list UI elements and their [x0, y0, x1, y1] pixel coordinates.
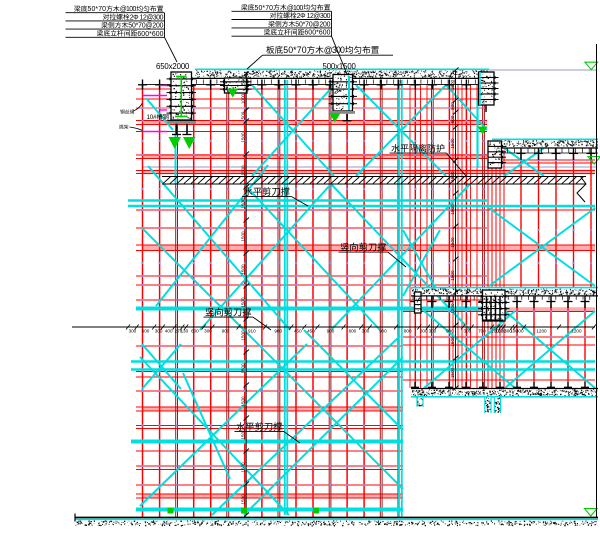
svg-text:1500: 1500: [241, 231, 246, 242]
svg-text:600: 600: [191, 329, 199, 334]
svg-text:1500: 1500: [450, 336, 455, 347]
svg-text:1500: 1500: [450, 270, 455, 281]
svg-text:300: 300: [420, 329, 428, 334]
svg-text:600: 600: [349, 329, 357, 334]
svg-text:1200: 1200: [536, 329, 547, 334]
svg-text:1500: 1500: [450, 204, 455, 215]
svg-text:1500: 1500: [241, 132, 246, 143]
svg-text:1500: 1500: [450, 237, 455, 248]
svg-text:300: 300: [155, 329, 163, 334]
svg-text:1500: 1500: [450, 171, 455, 182]
svg-text:700: 700: [478, 329, 486, 334]
svg-text:900: 900: [446, 329, 454, 334]
svg-text:@100: @100: [287, 5, 304, 12]
svg-text:600*600: 600*600: [137, 31, 163, 38]
svg-text:300: 300: [362, 329, 370, 334]
svg-text:300: 300: [129, 329, 137, 334]
svg-text:1500: 1500: [241, 429, 246, 440]
svg-text:1500: 1500: [450, 367, 455, 378]
svg-text:500: 500: [241, 111, 246, 119]
svg-text:1000: 1000: [241, 93, 246, 104]
svg-text:1200: 1200: [571, 329, 582, 334]
svg-text:900: 900: [327, 329, 335, 334]
svg-text:1500: 1500: [450, 138, 455, 149]
svg-text:@300: @300: [324, 45, 345, 55]
svg-text:650x2000: 650x2000: [156, 62, 190, 71]
svg-text:900: 900: [379, 329, 387, 334]
svg-text:910: 910: [248, 329, 256, 334]
svg-text:10#: 10#: [147, 114, 157, 121]
svg-text:50*70: 50*70: [283, 45, 306, 55]
svg-text:50*70: 50*70: [255, 5, 274, 12]
svg-text:900: 900: [222, 329, 230, 334]
svg-text:1500: 1500: [241, 297, 246, 308]
svg-text:600: 600: [142, 329, 150, 334]
svg-text:450: 450: [307, 329, 315, 334]
svg-text:600: 600: [450, 115, 455, 123]
svg-text:800: 800: [450, 102, 455, 110]
svg-text:1500: 1500: [241, 462, 246, 473]
svg-text:1500: 1500: [450, 303, 455, 314]
svg-text:1500: 1500: [241, 363, 246, 374]
svg-text:50*70@200: 50*70@200: [128, 23, 163, 30]
svg-text:50*70@200: 50*70@200: [295, 21, 330, 28]
svg-text:800: 800: [404, 329, 412, 334]
svg-text:2Φ 12@300: 2Φ 12@300: [297, 13, 331, 20]
svg-text:1500: 1500: [241, 198, 246, 209]
svg-text:1500: 1500: [241, 330, 246, 341]
svg-text:900: 900: [274, 329, 282, 334]
svg-text:400: 400: [165, 329, 173, 334]
svg-text:1500: 1500: [241, 165, 246, 176]
svg-text:450: 450: [294, 329, 302, 334]
svg-text:600*600: 600*600: [304, 30, 330, 37]
svg-text:1500: 1500: [241, 264, 246, 275]
svg-text:@100: @100: [120, 6, 137, 13]
svg-text:500x1500: 500x1500: [323, 62, 357, 71]
svg-text:1500: 1500: [241, 396, 246, 407]
svg-text:500: 500: [241, 77, 246, 85]
svg-text:2Φ 12@300: 2Φ 12@300: [130, 14, 164, 21]
svg-text:50*70: 50*70: [88, 6, 107, 13]
svg-text:1500: 1500: [450, 79, 455, 90]
svg-text:1500: 1500: [241, 494, 246, 505]
